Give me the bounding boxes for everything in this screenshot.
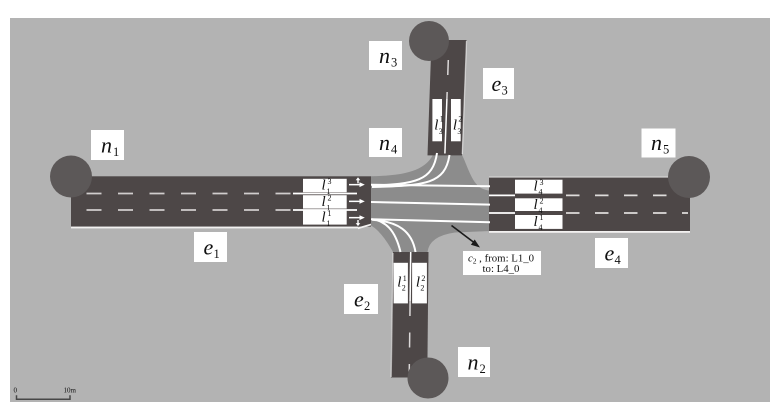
svg-text:e: e: [354, 286, 364, 311]
svg-text:3: 3: [328, 177, 332, 186]
svg-text:2: 2: [364, 299, 370, 313]
svg-text:2: 2: [421, 274, 425, 283]
svg-text:n: n: [101, 132, 112, 157]
svg-text:2: 2: [540, 196, 544, 205]
svg-text:1: 1: [540, 213, 544, 222]
svg-text:e: e: [204, 234, 214, 259]
svg-text:to: L4_0: to: L4_0: [483, 263, 520, 275]
svg-text:l: l: [534, 197, 538, 213]
svg-text:1: 1: [214, 247, 220, 261]
svg-text:1: 1: [113, 145, 119, 159]
svg-text:0: 0: [14, 387, 18, 395]
svg-text:4: 4: [391, 142, 398, 156]
svg-text:l: l: [322, 194, 326, 210]
svg-text:1: 1: [403, 274, 407, 283]
svg-text:4: 4: [615, 253, 622, 267]
svg-text:l: l: [322, 210, 326, 226]
svg-text:n: n: [379, 43, 390, 68]
svg-text:3: 3: [502, 83, 508, 97]
svg-text:1: 1: [328, 209, 332, 218]
svg-text:l: l: [534, 214, 538, 230]
svg-text:3: 3: [457, 127, 461, 136]
svg-text:2: 2: [328, 194, 332, 203]
svg-text:2: 2: [420, 284, 424, 293]
svg-text:5: 5: [663, 143, 669, 157]
svg-text:2: 2: [402, 284, 406, 293]
svg-text:e: e: [492, 71, 502, 96]
svg-text:3: 3: [439, 127, 443, 136]
svg-text:2: 2: [480, 362, 486, 376]
svg-text:l: l: [534, 179, 538, 195]
svg-text:1: 1: [327, 219, 331, 228]
svg-text:3: 3: [540, 178, 544, 187]
svg-text:n: n: [651, 130, 662, 155]
svg-text:n: n: [468, 349, 479, 374]
svg-text:3: 3: [391, 55, 397, 69]
svg-text:1: 1: [440, 115, 444, 124]
svg-text:n: n: [379, 130, 390, 155]
svg-text:2: 2: [458, 115, 462, 124]
svg-text:e: e: [605, 240, 615, 265]
svg-text:10m: 10m: [64, 387, 77, 395]
svg-text:4: 4: [539, 223, 543, 232]
svg-text:l: l: [322, 178, 326, 194]
